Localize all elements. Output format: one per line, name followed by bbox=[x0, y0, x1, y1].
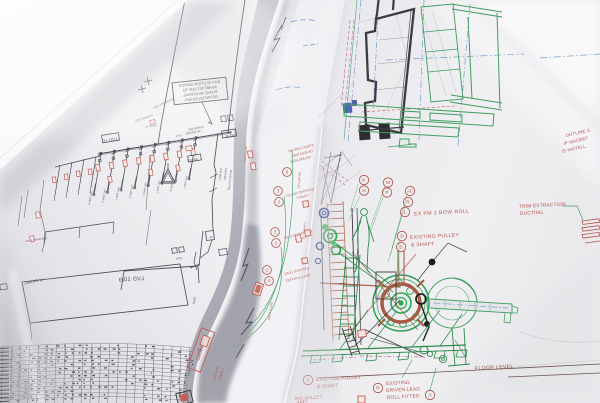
svg-text:D: D bbox=[400, 234, 404, 240]
svg-text:P: P bbox=[385, 190, 388, 196]
svg-text:& SHAFT: & SHAFT bbox=[411, 241, 435, 248]
svg-text:L: L bbox=[404, 210, 407, 216]
svg-text:R: R bbox=[267, 279, 270, 284]
svg-text:E: E bbox=[276, 189, 279, 194]
svg-text:DUCTING: DUCTING bbox=[520, 210, 544, 217]
svg-text:S: S bbox=[274, 241, 277, 246]
svg-text:SV: SV bbox=[209, 235, 213, 239]
svg-text:EXISTING: EXISTING bbox=[386, 380, 410, 387]
svg-text:S: S bbox=[399, 245, 402, 251]
svg-text:B: B bbox=[285, 170, 288, 175]
svg-text:R: R bbox=[406, 200, 410, 206]
svg-text:S: S bbox=[277, 200, 280, 205]
svg-text:M: M bbox=[386, 180, 390, 186]
svg-text:E: E bbox=[273, 230, 276, 235]
svg-text:R: R bbox=[376, 386, 380, 392]
svg-text:AC: AC bbox=[407, 189, 413, 194]
svg-text:N: N bbox=[362, 188, 366, 194]
svg-text:DPX: DPX bbox=[175, 256, 182, 261]
